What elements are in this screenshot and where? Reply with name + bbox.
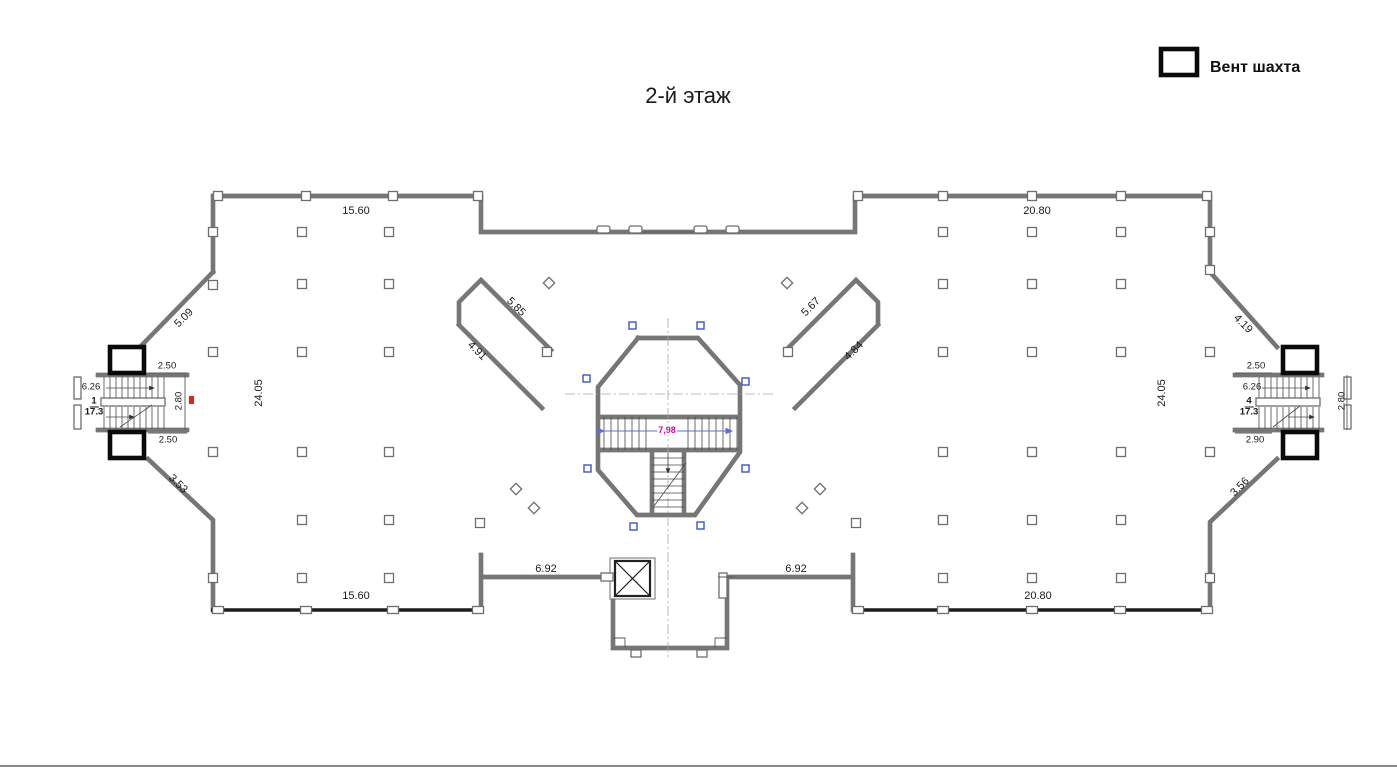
dim-left-stair-depth: 2.80 xyxy=(174,392,185,411)
dim-left-wing-depth: 24.05 xyxy=(253,379,265,407)
dim-top-right-wing: 20.80 xyxy=(1023,205,1051,217)
left-stair-room-area: 17.3 xyxy=(85,407,104,418)
left-stair-room-tag: 1 17.3 xyxy=(85,397,104,418)
floor-plan-page: 2-й этаж Вент шахта 15.60 20.80 15.60 20… xyxy=(0,0,1397,767)
dim-right-stair-width-top: 2.50 xyxy=(1247,361,1266,372)
dim-top-left-wing: 15.60 xyxy=(342,205,370,217)
right-stair-room-tag: 4 17.3 xyxy=(1240,397,1259,418)
dim-bottom-right-wing: 20.80 xyxy=(1024,590,1052,602)
axis-lines xyxy=(565,318,775,660)
legend-label: Вент шахта xyxy=(1210,59,1300,77)
page-title: 2-й этаж xyxy=(645,83,731,109)
red-tick xyxy=(189,396,194,404)
vent-shaft-right-bottom xyxy=(1283,432,1317,458)
dim-right-stair-length: 6.26 xyxy=(1243,382,1262,393)
column-grid xyxy=(209,192,1215,614)
dim-right-stair-width-bottom: 2.90 xyxy=(1246,435,1265,446)
legend-vent-shaft-swatch xyxy=(1161,49,1197,75)
floor-plan-drawing xyxy=(0,0,1397,767)
dim-bottom-left-wing: 15.60 xyxy=(342,590,370,602)
vent-shaft-left-top xyxy=(110,347,144,373)
dim-right-stair-depth: 2.80 xyxy=(1337,392,1348,411)
vent-shafts xyxy=(110,347,1317,458)
dim-bottom-center-right: 6.92 xyxy=(785,563,806,575)
dim-central-stair-width: 7,98 xyxy=(657,425,677,435)
dim-left-stair-width-top: 2.50 xyxy=(158,361,177,372)
dim-left-stair-length: 6.26 xyxy=(82,382,101,393)
right-stair-room-area: 17.3 xyxy=(1240,407,1259,418)
dim-bottom-center-left: 6.92 xyxy=(535,563,556,575)
dim-left-stair-width-bottom: 2.50 xyxy=(159,435,178,446)
vent-shaft-left-bottom xyxy=(110,432,144,458)
elevator-shaft xyxy=(610,558,655,599)
vent-shaft-right-top xyxy=(1283,347,1317,373)
dim-right-wing-depth: 24.05 xyxy=(1156,379,1168,407)
perimeter-walls xyxy=(98,196,1322,648)
